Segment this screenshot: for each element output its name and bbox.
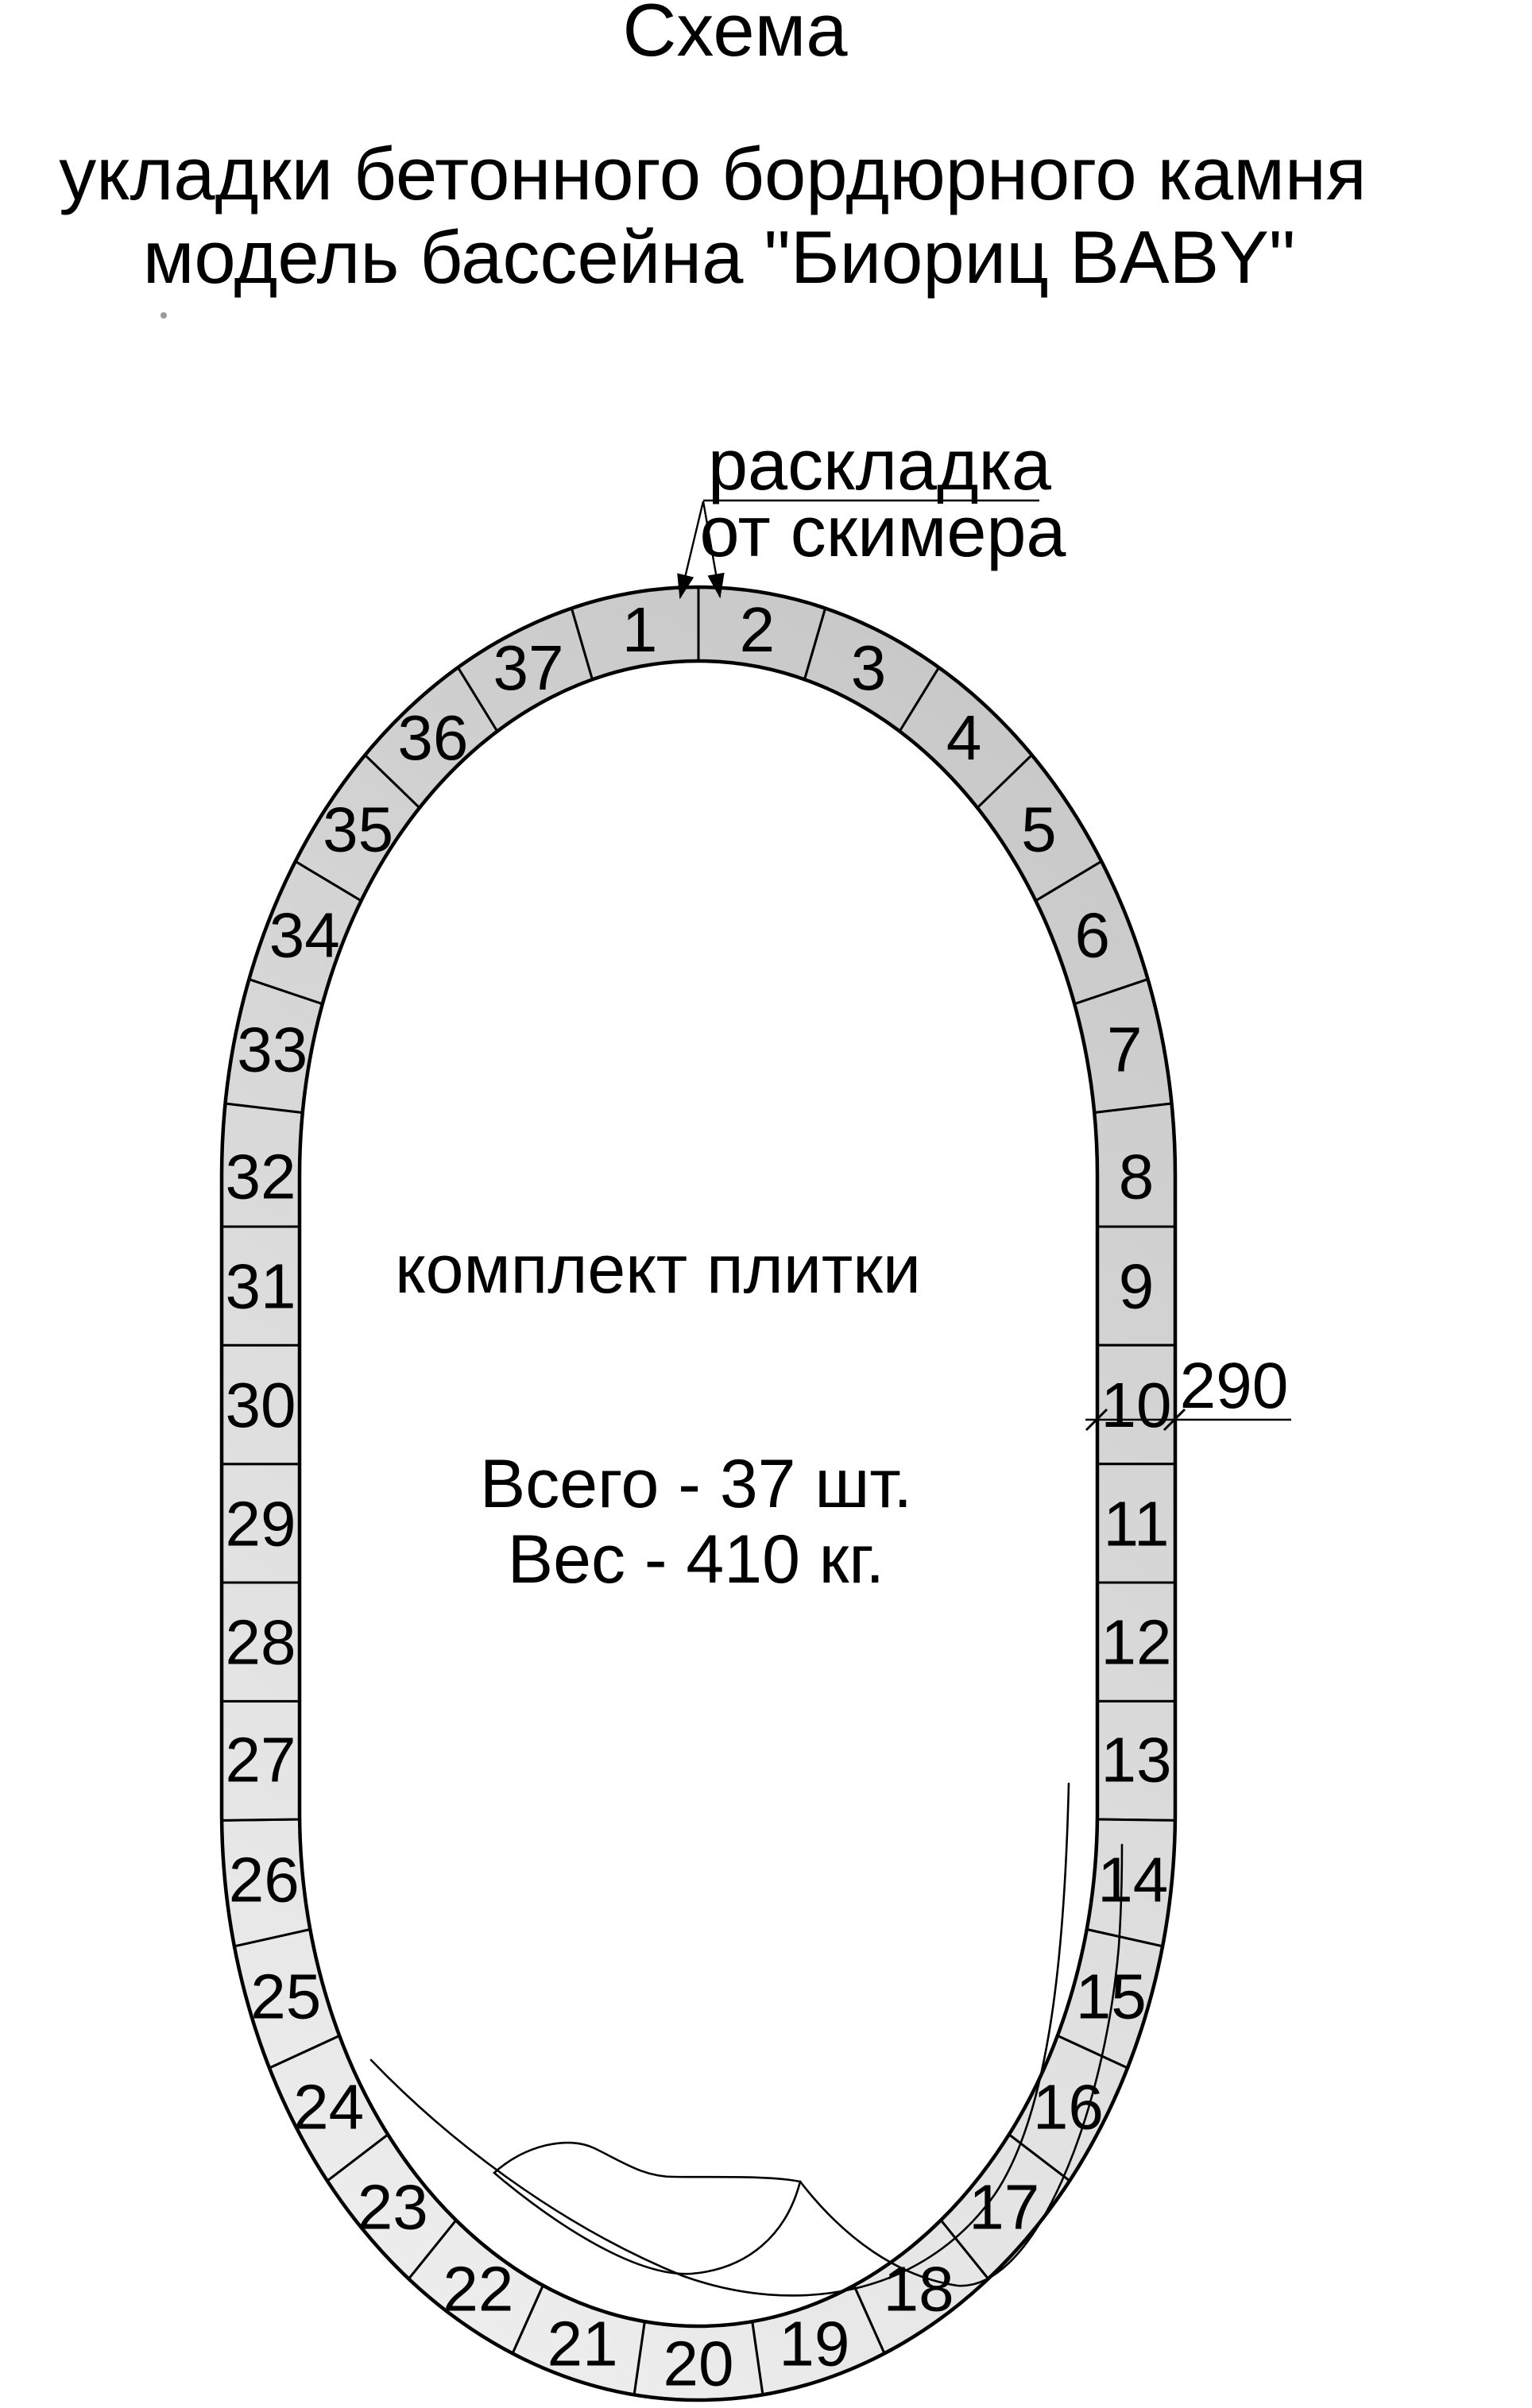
sketch-wave-leaf [494, 2143, 800, 2274]
segment-number: 6 [1074, 900, 1110, 971]
segment-number: 10 [1101, 1370, 1172, 1440]
subtitle-line-1: укладки бетонного бордюрного камня [59, 132, 1366, 215]
segment-number: 17 [969, 2171, 1039, 2242]
segment-number: 34 [269, 900, 340, 971]
segment-number: 5 [1021, 794, 1057, 864]
total-label: Всего - 37 шт. [480, 1446, 912, 1522]
segment-number: 4 [946, 702, 982, 773]
segment-number: 19 [779, 2309, 849, 2379]
segment-number: 25 [250, 1961, 321, 2031]
segment-number: 14 [1097, 1844, 1168, 1915]
segment-number: 21 [547, 2309, 618, 2379]
segment-number: 27 [226, 1725, 296, 1795]
segment-number: 35 [323, 794, 393, 864]
segment-number: 37 [493, 632, 564, 703]
segment-number: 20 [663, 2329, 734, 2399]
segment-number: 31 [226, 1251, 296, 1322]
segment-number: 24 [293, 2072, 364, 2143]
scheme-canvas: Схема укладки бетонного бордюрного камня… [0, 0, 1532, 2408]
segment-number: 1 [622, 594, 658, 665]
segment-number: 29 [226, 1488, 296, 1559]
segment-number: 9 [1119, 1251, 1155, 1322]
segment-number: 15 [1076, 1961, 1147, 2031]
skimmer-label-line-2: от скимера [700, 493, 1067, 572]
segment-number: 16 [1033, 2072, 1104, 2143]
page-title: Схема [622, 0, 848, 72]
segment-number: 28 [226, 1607, 296, 1678]
dimension-value: 290 [1180, 1350, 1289, 1422]
segment-number: 23 [358, 2171, 428, 2242]
subtitle-line-2: модель бассейна "Биориц BABY" [143, 215, 1296, 299]
segment-number: 30 [226, 1370, 296, 1440]
weight-label: Вес - 410 кг. [508, 1521, 884, 1598]
segment-number: 11 [1103, 1488, 1169, 1559]
ink-dot [161, 312, 167, 319]
segment-number: 32 [226, 1142, 296, 1212]
segment-number: 22 [443, 2253, 513, 2324]
segment-number: 8 [1119, 1142, 1155, 1212]
segment-number: 26 [229, 1844, 300, 1915]
segment-number: 12 [1101, 1607, 1172, 1678]
segment-number: 2 [740, 594, 776, 665]
skimmer-callout: раскладка от скимера [680, 426, 1066, 597]
kit-label: комплект плитки [395, 1231, 921, 1308]
segment-number: 13 [1101, 1725, 1172, 1795]
segment-number: 33 [237, 1015, 308, 1085]
segment-number: 3 [851, 632, 887, 703]
segment-number: 36 [397, 702, 468, 773]
diagram-page: Схема укладки бетонного бордюрного камня… [0, 0, 1532, 2408]
segment-number: 7 [1107, 1015, 1143, 1085]
